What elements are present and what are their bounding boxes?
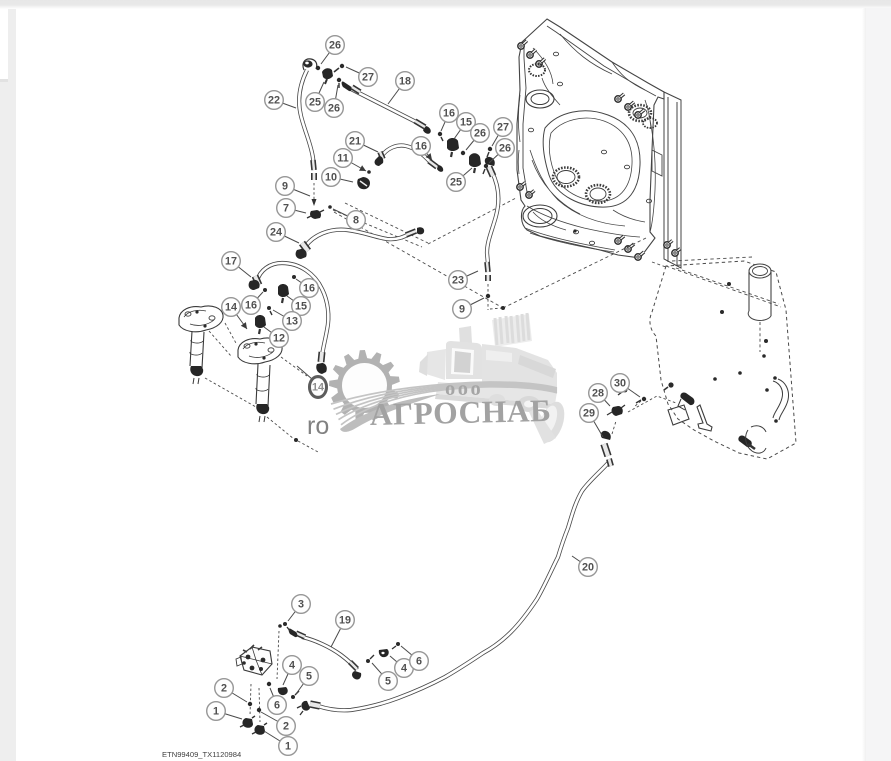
svg-text:26: 26 [474,128,486,140]
svg-text:6: 6 [274,700,280,712]
svg-text:16: 16 [303,283,315,295]
svg-text:26: 26 [328,103,340,115]
svg-text:30: 30 [614,378,626,390]
svg-text:27: 27 [497,122,509,134]
svg-text:1: 1 [213,706,219,718]
svg-text:14: 14 [312,382,324,394]
svg-text:26: 26 [499,143,511,155]
svg-text:21: 21 [349,136,361,148]
svg-text:5: 5 [385,676,391,688]
svg-text:ETN99409_TX1120984: ETN99409_TX1120984 [162,750,241,759]
svg-text:3: 3 [298,599,304,611]
svg-text:26: 26 [329,40,341,52]
svg-text:24: 24 [270,227,282,239]
svg-text:13: 13 [286,316,298,328]
svg-text:9: 9 [282,181,288,193]
svg-text:14: 14 [225,302,237,314]
svg-text:23: 23 [452,275,464,287]
svg-text:19: 19 [339,615,351,627]
svg-text:17: 17 [225,256,237,268]
svg-text:11: 11 [337,153,348,165]
svg-text:АГРОСНАБ: АГРОСНАБ [369,393,551,432]
svg-text:10: 10 [325,172,337,184]
svg-text:7: 7 [283,203,289,215]
svg-text:16: 16 [245,300,257,312]
svg-text:12: 12 [273,333,285,345]
svg-text:ro: ro [307,412,329,440]
svg-text:4: 4 [289,660,295,672]
svg-text:25: 25 [309,97,321,109]
svg-text:2: 2 [283,721,289,733]
svg-text:4: 4 [401,663,407,675]
svg-text:1: 1 [285,741,291,753]
svg-text:6: 6 [416,656,422,668]
svg-text:5: 5 [306,671,312,683]
svg-text:15: 15 [295,301,307,313]
svg-text:29: 29 [583,408,595,420]
svg-text:18: 18 [399,76,411,88]
svg-text:25: 25 [450,177,462,189]
svg-text:27: 27 [362,72,374,84]
svg-text:9: 9 [459,304,465,316]
svg-text:28: 28 [592,388,604,400]
svg-text:8: 8 [353,215,359,227]
svg-text:15: 15 [460,117,472,129]
svg-text:20: 20 [582,562,594,574]
svg-text:2: 2 [221,683,227,695]
svg-text:16: 16 [443,108,455,120]
svg-text:22: 22 [268,95,280,107]
svg-text:16: 16 [415,141,427,153]
